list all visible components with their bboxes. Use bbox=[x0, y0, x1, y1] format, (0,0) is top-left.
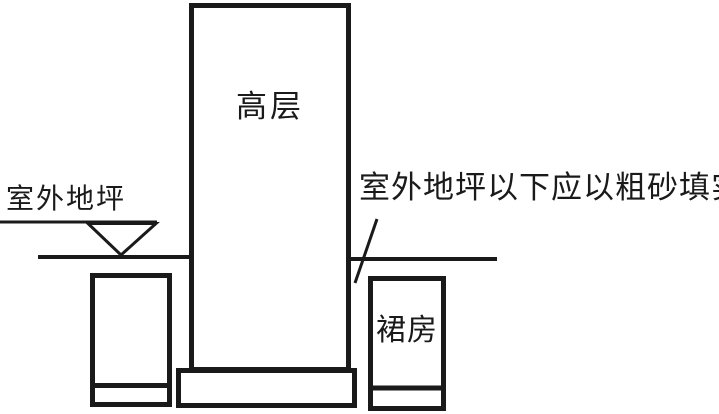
annotation-leader-line bbox=[355, 219, 377, 283]
ground-level-marker-icon bbox=[88, 224, 156, 256]
outdoor-ground-label: 室外地坪 bbox=[6, 184, 126, 215]
high-rise-building-rect bbox=[192, 6, 349, 370]
construction-diagram-canvas: 室外地坪 室外地坪以下应以粗砂填实 高层 裙房 bbox=[0, 0, 719, 414]
coarse-sand-fill-annotation-label: 室外地坪以下应以粗砂填实 bbox=[359, 171, 719, 205]
podium-label: 裙房 bbox=[368, 314, 446, 347]
foundation-footing-rect bbox=[179, 371, 355, 406]
high-rise-label: 高层 bbox=[189, 90, 351, 124]
